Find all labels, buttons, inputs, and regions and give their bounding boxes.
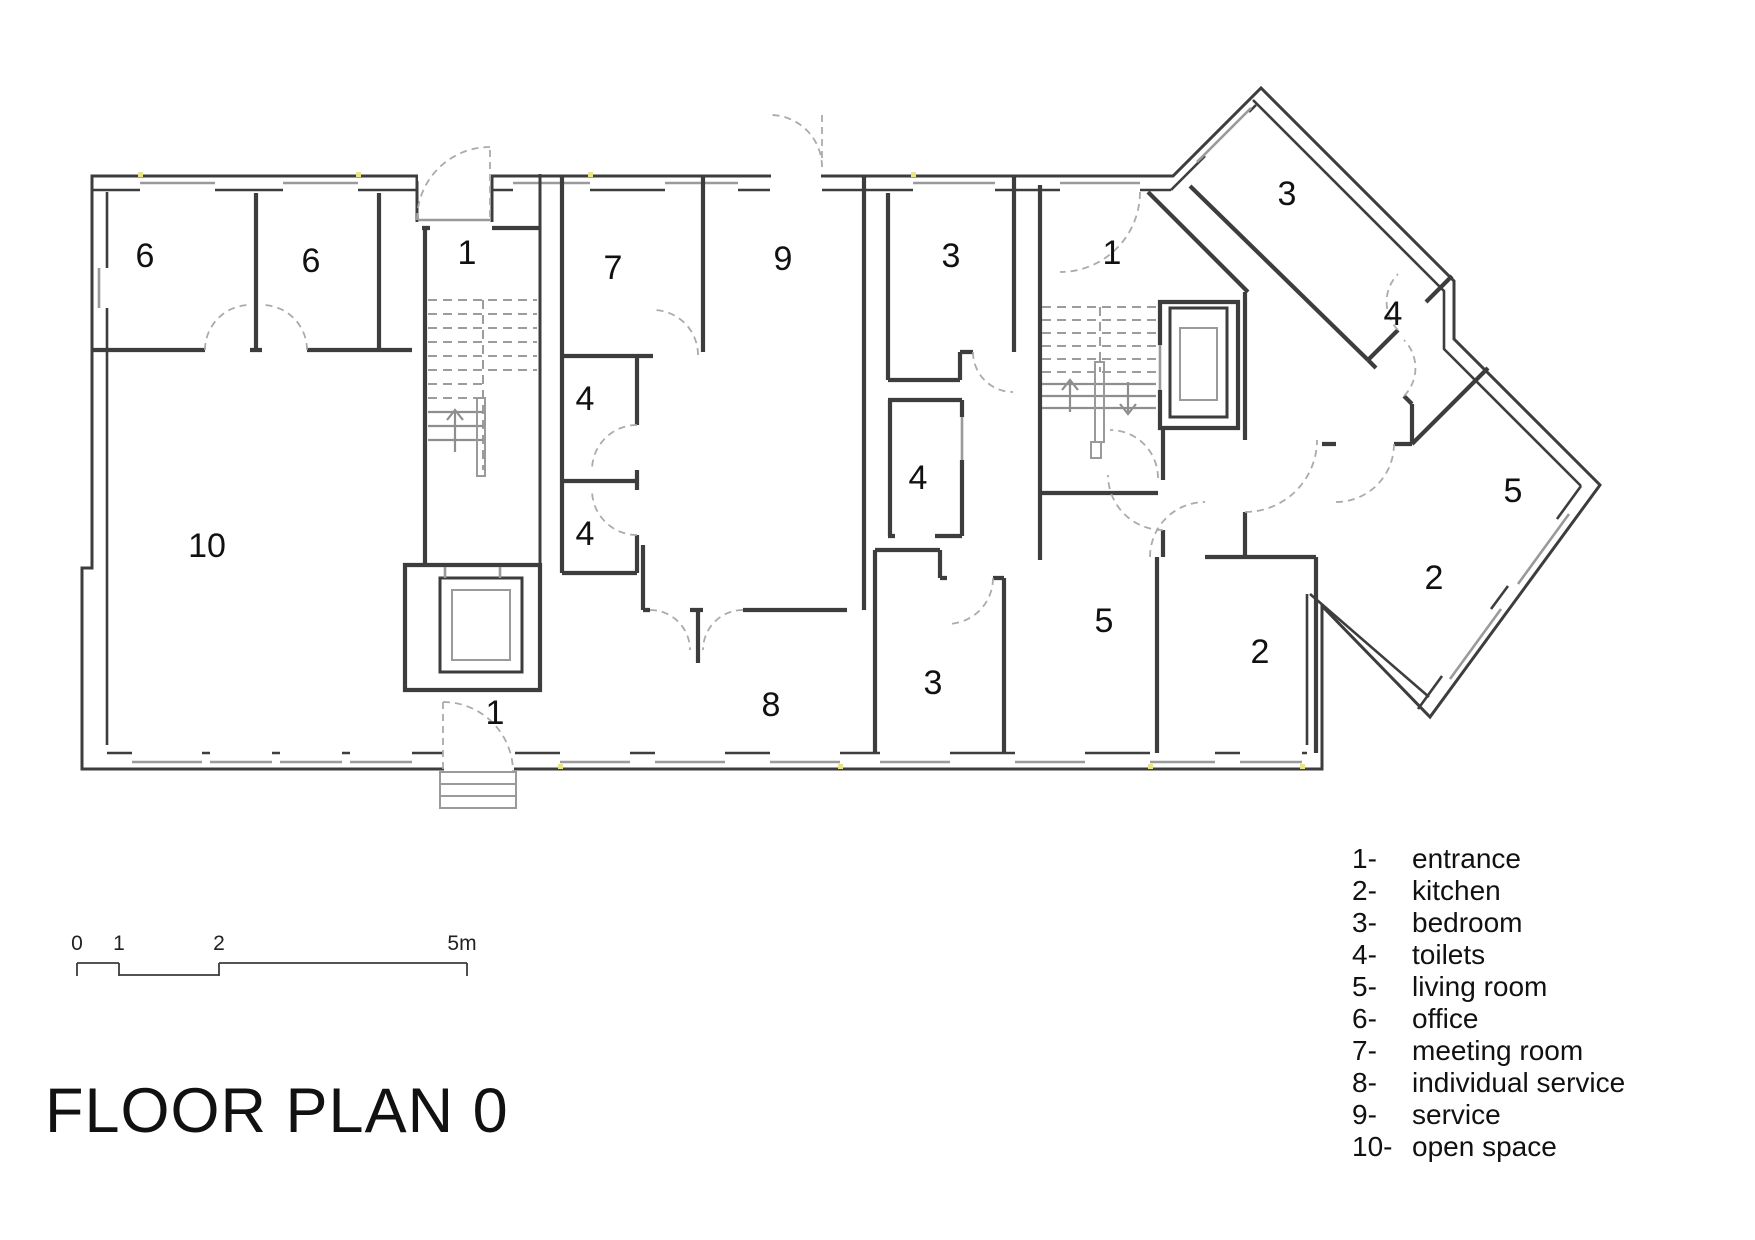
elevator-right (1157, 302, 1238, 428)
scale-label: 0 (71, 932, 83, 955)
room-label-meeting-room: 7 (604, 249, 623, 287)
room-label-office: 6 (136, 237, 155, 275)
room-label-toilets: 4 (576, 380, 595, 418)
legend-key: 2- (1352, 875, 1377, 906)
room-label-entrance: 1 (1103, 234, 1122, 272)
doors (205, 115, 1415, 772)
room-label-office: 6 (302, 242, 321, 280)
room-label-kitchen: 2 (1251, 633, 1270, 671)
room-label-living-room: 5 (1504, 472, 1523, 510)
legend-label-service: service (1412, 1099, 1501, 1130)
legend-label-bedroom: bedroom (1412, 907, 1523, 938)
scale-label: 5m (447, 932, 476, 955)
floor-plan-page: 661793134444105252381 0125m FLOOR PLAN 0… (0, 0, 1755, 1240)
room-label-toilets: 4 (909, 459, 928, 497)
room-label-bedroom: 3 (1278, 175, 1297, 213)
entrance-steps (440, 772, 516, 808)
room-label-kitchen: 2 (1425, 559, 1444, 597)
stairs-right (1042, 307, 1156, 458)
room-label-entrance: 1 (486, 694, 505, 732)
legend-label-toilets: toilets (1412, 939, 1485, 970)
legend-key: 5- (1352, 971, 1377, 1002)
room-label-bedroom: 3 (924, 664, 943, 702)
legend-label-individual-service: individual service (1412, 1067, 1625, 1098)
legend-label-office: office (1412, 1003, 1478, 1034)
legend-key: 10- (1352, 1131, 1392, 1162)
legend-key: 4- (1352, 939, 1377, 970)
legend-key: 1- (1352, 843, 1377, 874)
legend-key: 6- (1352, 1003, 1377, 1034)
legend: 1-entrance2-kitchen3-bedroom4-toilets5-l… (1352, 843, 1625, 1162)
legend-key: 3- (1352, 907, 1377, 938)
legend-label-living-room: living room (1412, 971, 1547, 1002)
legend-label-entrance: entrance (1412, 843, 1521, 874)
elevator-left (405, 565, 540, 690)
windows (99, 108, 1569, 769)
scale-label: 2 (213, 932, 225, 955)
floor-plan-canvas: 661793134444105252381 0125m FLOOR PLAN 0… (0, 0, 1755, 1240)
scale-bar: 0125m (71, 932, 476, 976)
room-label-living-room: 5 (1095, 602, 1114, 640)
room-label-service: 9 (774, 240, 793, 278)
legend-key: 8- (1352, 1067, 1377, 1098)
room-label-toilets: 4 (1384, 295, 1403, 333)
room-label-individual-service: 8 (762, 686, 781, 724)
room-label-toilets: 4 (576, 515, 595, 553)
legend-label-meeting-room: meeting room (1412, 1035, 1583, 1066)
room-label-bedroom: 3 (942, 237, 961, 275)
scale-label: 1 (113, 932, 125, 955)
room-label-open-space: 10 (188, 527, 226, 565)
exterior-walls (82, 88, 1600, 769)
room-label-entrance: 1 (458, 234, 477, 272)
legend-label-kitchen: kitchen (1412, 875, 1501, 906)
legend-key: 9- (1352, 1099, 1377, 1130)
plan-title: FLOOR PLAN 0 (45, 1076, 509, 1146)
stairs-left (428, 300, 537, 476)
legend-key: 7- (1352, 1035, 1377, 1066)
legend-label-open-space: open space (1412, 1131, 1557, 1162)
